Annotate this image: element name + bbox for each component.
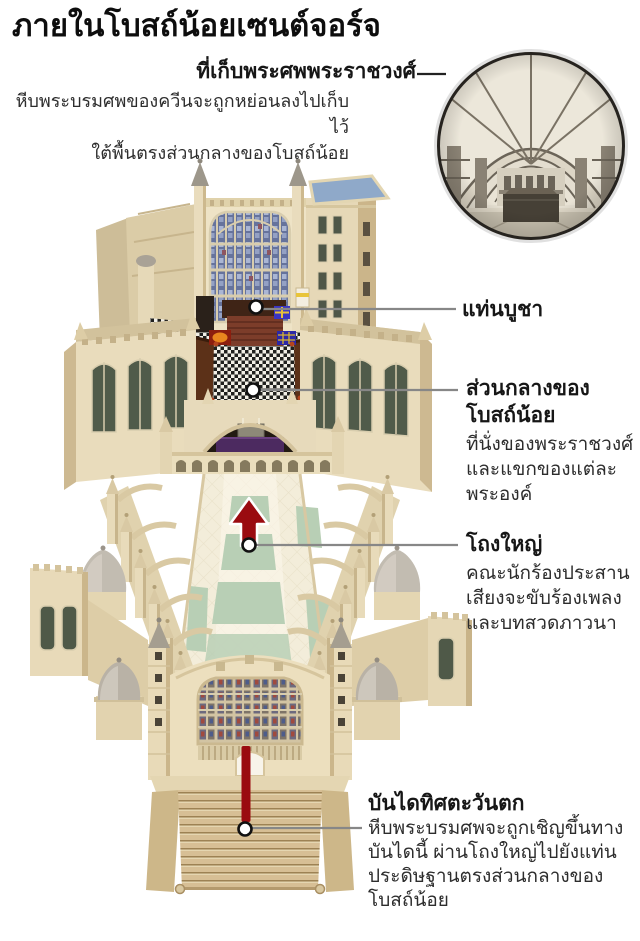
blue-roof (310, 176, 388, 204)
callout-desc: คณะนักร้องประสาน เสียงจะขับร้องเพลง และบ… (466, 561, 630, 636)
callout-label: ที่เก็บพระศพพระราชวงศ์ (196, 58, 416, 85)
callout-desc: หีบพระบรมศพจะถูกเชิญขึ้นทาง บันไดนี้ ผ่า… (368, 817, 623, 913)
callout-royal-vault-desc: หีบพระบรมศพของควีนจะถูกหย่อนลงไปเก็บไว้ … (0, 88, 349, 166)
callout-label: โบสถ์น้อย (466, 402, 633, 429)
marker-nave-icon (243, 539, 256, 552)
callout-desc-line: โบสถ์น้อย (368, 889, 623, 913)
callout-desc-line: ใต้พื้นตรงส่วนกลางของโบสถ์น้อย (0, 140, 349, 166)
callout-label: แท่นบูชา (462, 296, 543, 323)
callout-desc-line: พระองค์ (466, 482, 633, 507)
callout-desc-line: ที่นั่งของพระราชวงศ์ (466, 432, 633, 457)
west-turret-right (330, 618, 352, 781)
royal-vault-inset-image (437, 52, 627, 244)
callout-desc-line: คณะนักร้องประสาน (466, 561, 630, 586)
marker-quire-icon (247, 384, 260, 397)
callout-altar: แท่นบูชา (462, 296, 543, 323)
callout-royal-vault-label: ที่เก็บพระศพพระราชวงศ์ (196, 58, 416, 85)
altar (227, 316, 283, 346)
callout-desc-line: หีบพระบรมศพของควีนจะถูกหย่อนลงไปเก็บไว้ (0, 88, 349, 140)
marker-altar-icon (250, 301, 263, 314)
callout-desc-line: ประดิษฐานตรงส่วนกลางของ (368, 865, 623, 889)
callout-desc-line: หีบพระบรมศพจะถูกเชิญขึ้นทาง (368, 817, 623, 841)
callout-desc-line: และแขกของแต่ละ (466, 457, 633, 482)
infographic-canvas: ภายในโบสถ์น้อยเซนต์จอร์จ ที่เก็บพระศพพระ… (0, 0, 640, 941)
callout-label: ส่วนกลางของ (466, 375, 633, 402)
callout-desc: ที่นั่งของพระราชวงศ์ และแขกของแต่ละ พระอ… (466, 432, 633, 507)
callout-desc-line: และบทสวดภาวนา (466, 611, 630, 636)
route-line (242, 746, 251, 822)
callout-label: บันไดทิศตะวันตก (368, 790, 623, 817)
callout-west-steps: บันไดทิศตะวันตก หีบพระบรมศพจะถูกเชิญขึ้น… (368, 790, 623, 913)
page-title: ภายในโบสถ์น้อยเซนต์จอร์จ (12, 4, 381, 48)
callout-quire: ส่วนกลางของ โบสถ์น้อย ที่นั่งของพระราชวง… (466, 375, 633, 507)
callout-label: โถงใหญ่ (466, 531, 630, 558)
callout-nave: โถงใหญ่ คณะนักร้องประสาน เสียงจะขับร้องเ… (466, 531, 630, 636)
callout-desc-line: เสียงจะขับร้องเพลง (466, 586, 630, 611)
west-turret-left (148, 618, 170, 781)
marker-steps-icon (239, 823, 252, 836)
callout-desc-line: บันไดนี้ ผ่านโถงใหญ่ไปยังแท่น (368, 841, 623, 865)
